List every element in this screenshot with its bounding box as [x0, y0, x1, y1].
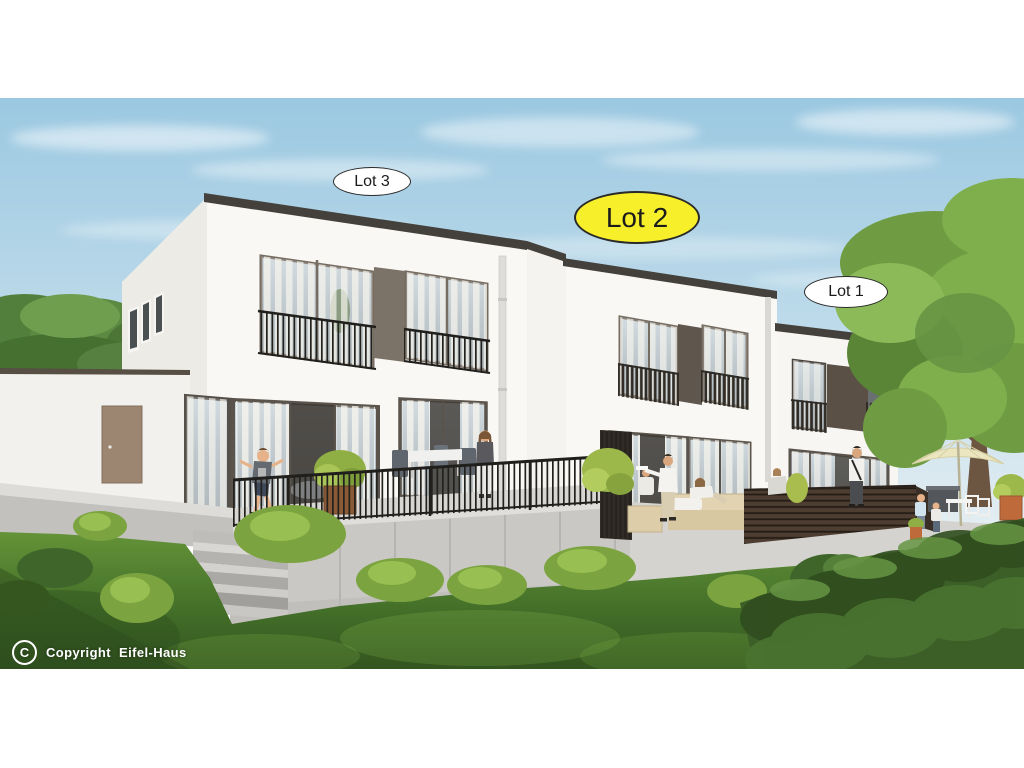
facade-panel — [374, 267, 405, 362]
shrub-small — [786, 473, 808, 503]
copyright-notice: C Copyright Eifel-Haus — [12, 640, 187, 665]
copyright-icon: C — [12, 640, 37, 665]
rendering-image — [0, 98, 1024, 669]
boundary-wall — [0, 368, 190, 504]
rendering-page: Lot 3 Lot 2 Lot 1 C Copyright Eifel-Haus — [0, 0, 1024, 768]
downpipe — [499, 256, 506, 494]
terrace-shrub — [582, 448, 634, 495]
downpipe — [765, 297, 771, 482]
rendering-canvas — [0, 98, 1024, 669]
garage-door — [102, 406, 142, 483]
patio-table — [408, 449, 462, 462]
facade-panel — [678, 324, 702, 405]
copyright-text: Copyright Eifel-Haus — [46, 645, 187, 660]
planter-orange-small — [908, 518, 924, 540]
label-lot1: Lot 1 — [804, 276, 888, 308]
label-lot2: Lot 2 — [574, 191, 700, 244]
label-lot3: Lot 3 — [333, 167, 411, 196]
door-handle — [108, 445, 111, 448]
